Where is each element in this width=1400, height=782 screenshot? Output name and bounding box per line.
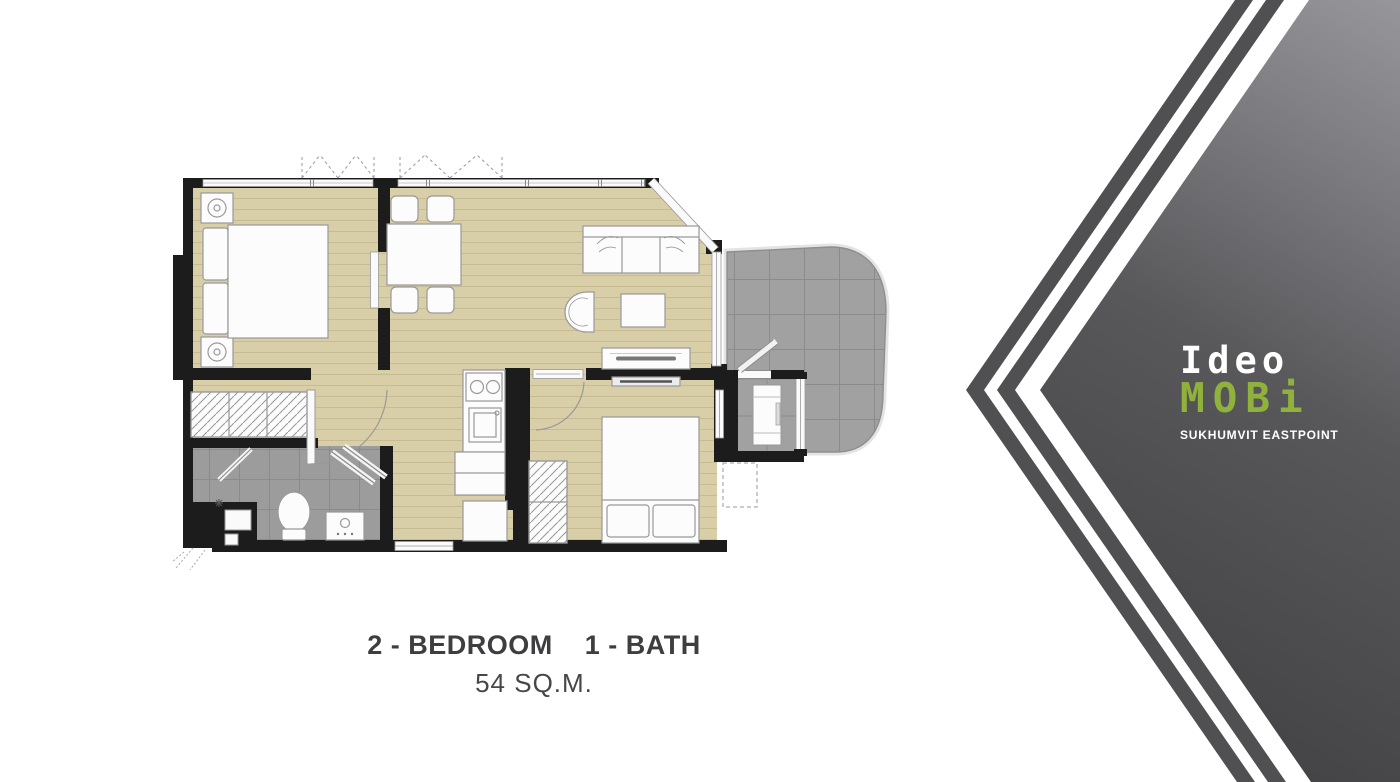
- wall-bath-top: [193, 438, 318, 448]
- wardrobe-2: [529, 461, 567, 543]
- plan-caption: 2 - BEDROOM1 - BATH 54 SQ.M.: [184, 630, 884, 699]
- toilet: [278, 492, 310, 540]
- tv-console: [602, 348, 690, 369]
- nightstand: [201, 337, 233, 367]
- unit-type-label: 2 - BEDROOM1 - BATH: [184, 630, 884, 661]
- vanity-sink: [326, 512, 364, 540]
- bedroom-count-label: 2 - BEDROOM: [367, 630, 553, 660]
- pillow: [607, 505, 649, 537]
- tv-shelf: [612, 377, 680, 386]
- brand-subtitle: SUKHUMVIT EASTPOINT: [1180, 429, 1339, 441]
- bath-count-label: 1 - BATH: [585, 630, 701, 660]
- bed-1: [228, 225, 328, 338]
- casement-swing-marks: [302, 154, 502, 178]
- dining-chair: [427, 196, 454, 222]
- living-window: [398, 180, 645, 187]
- entrance-dash-marks: [172, 548, 205, 570]
- dining-table: [387, 224, 461, 285]
- brochure-page: 2 - BEDROOM1 - BATH 54 SQ.M. Ideo MOBi S…: [0, 0, 1400, 782]
- wall-left-thick: [173, 255, 193, 380]
- bedroom1-window: [203, 180, 373, 187]
- wall-bath-right: [380, 446, 393, 542]
- bedroom2-exterior-dashed: [723, 463, 757, 507]
- bedroom2-window: [716, 390, 724, 438]
- kitchen-fixtures: [455, 370, 507, 541]
- wall-bed1-south: [183, 368, 311, 380]
- dining-chair: [391, 287, 418, 313]
- unit-area-label: 54 SQ.M.: [184, 668, 884, 699]
- ac-unit: [753, 385, 781, 445]
- side-table: [621, 294, 665, 327]
- dining-chair: [391, 196, 418, 222]
- wardrobe-1: [191, 392, 307, 437]
- wall-bed1-dining-lower: [378, 308, 390, 370]
- pillow: [653, 505, 695, 537]
- lower-cabinet: [463, 501, 507, 541]
- nightstand: [201, 193, 233, 223]
- bedroom-1-furniture: [191, 193, 328, 437]
- dining-chair: [427, 287, 454, 313]
- wall-kitchen-lower: [513, 508, 530, 544]
- living-east-glass: [712, 252, 721, 366]
- sofa: [583, 226, 699, 273]
- wall-kitchen: [505, 368, 530, 510]
- brand-name-mobi: MOBi: [1180, 378, 1339, 419]
- dining-slid-door-panel: [371, 252, 379, 308]
- hall-bottom-window: [395, 542, 453, 551]
- ac-ledge-window: [794, 372, 807, 456]
- floor-plan: [172, 154, 886, 570]
- brand-logo: Ideo MOBi SUKHUMVIT EASTPOINT: [1180, 342, 1339, 441]
- shower-drain: [215, 499, 223, 507]
- headboard-cushion: [203, 283, 228, 334]
- headboard-cushion: [203, 228, 228, 280]
